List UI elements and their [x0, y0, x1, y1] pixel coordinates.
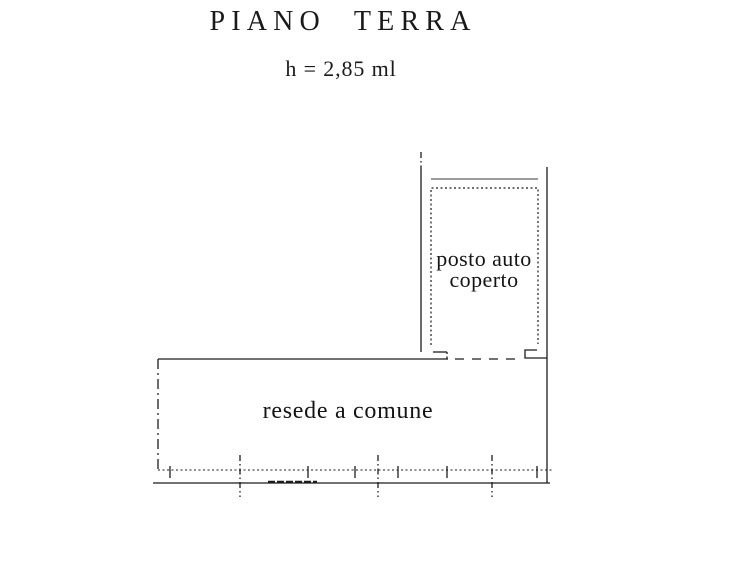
carport-label-line1: posto auto — [436, 248, 531, 269]
room-label-courtyard: resede a comune — [263, 401, 434, 422]
room-label-carport: posto auto coperto — [436, 248, 531, 290]
floor-plan-drawing — [0, 0, 734, 580]
scanned-floor-plan-page: PIANO TERRA h = 2,85 ml — [0, 0, 734, 580]
carport-label-line2: coperto — [436, 269, 531, 290]
carport-right-notch — [525, 350, 547, 358]
